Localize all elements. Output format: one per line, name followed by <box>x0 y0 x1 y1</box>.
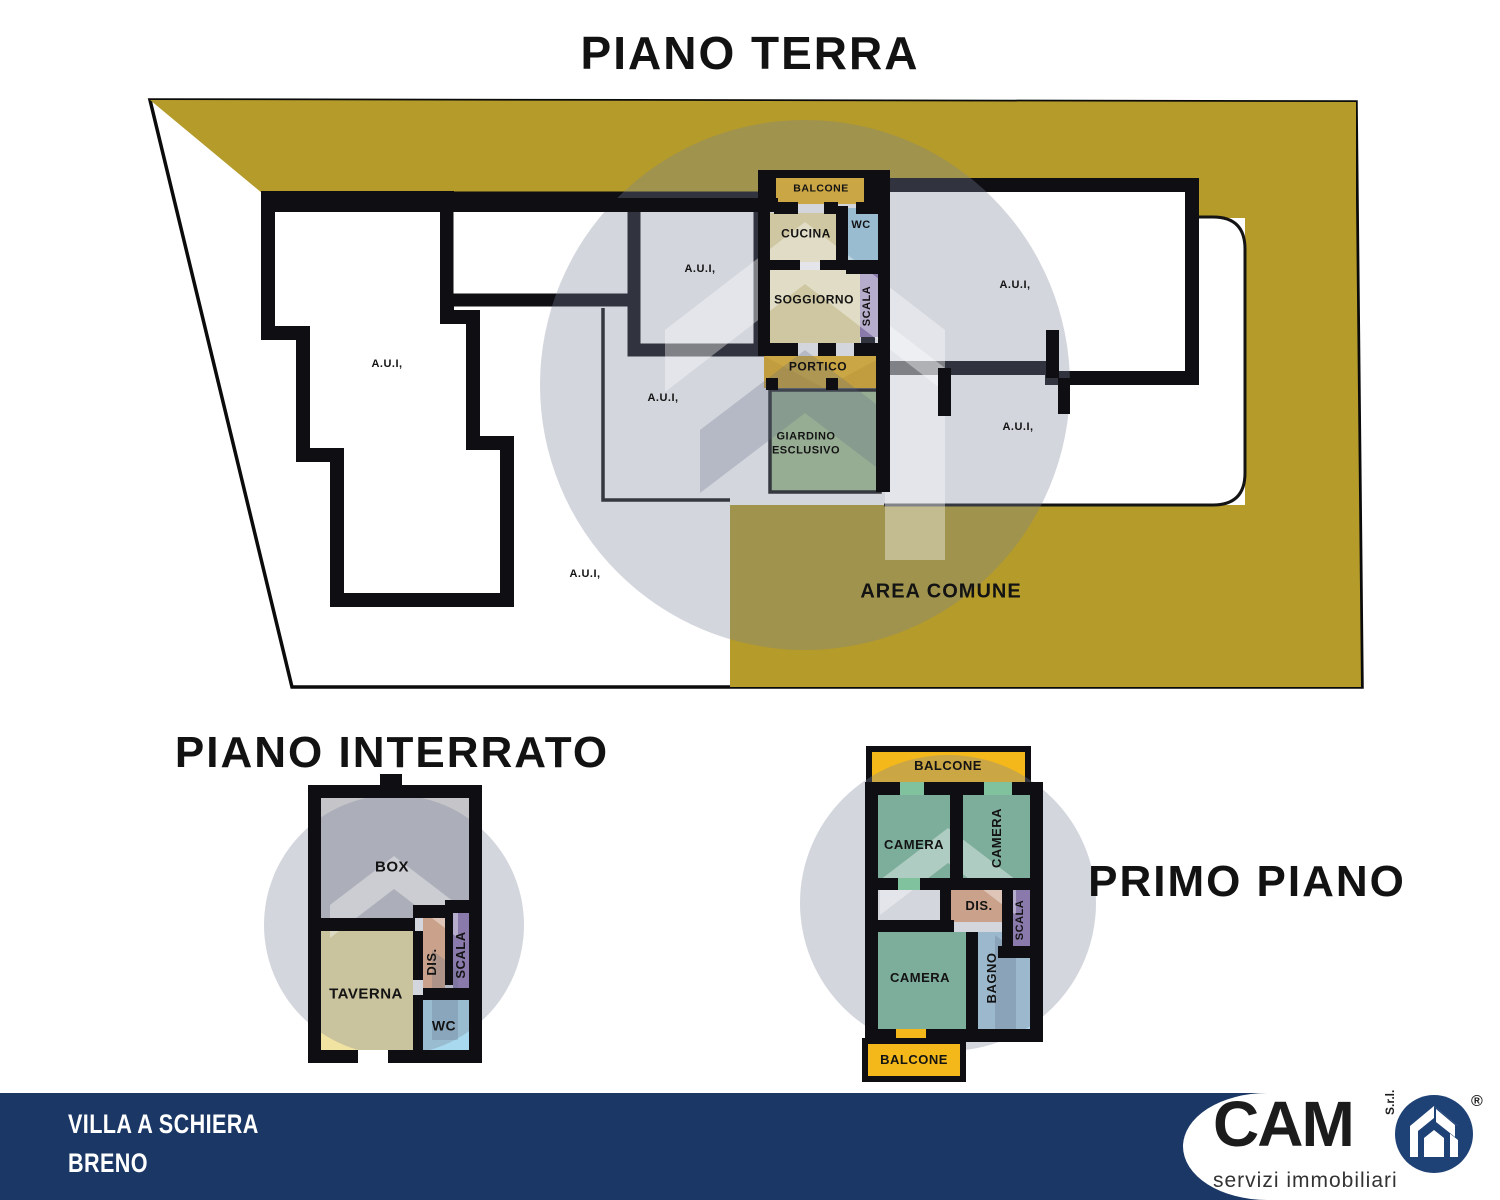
aui-label: A.U.I, <box>371 358 402 372</box>
room-label-scala-ground: SCALA <box>861 286 875 326</box>
room-label-giardino: GIARDINO ESCLUSIVO <box>772 430 840 458</box>
room-label-scala-basement: SCALA <box>453 931 469 978</box>
area-comune-label: AREA COMUNE <box>860 580 1021 605</box>
aui-label: A.U.I, <box>999 279 1030 293</box>
first-floor-plan <box>800 746 1096 1082</box>
cam-logo-circle <box>1395 1095 1473 1173</box>
aui-label: A.U.I, <box>684 263 715 277</box>
room-label-soggiorno: SOGGIORNO <box>774 293 854 308</box>
plan-sheet: PIANO TERRA PIANO INTERRATO PRIMO PIANO … <box>0 0 1500 1200</box>
room-label-balcone-ground: BALCONE <box>793 182 848 195</box>
title-piano-terra: PIANO TERRA <box>450 26 1050 80</box>
property-title: VILLA A SCHIERA BRENO <box>68 1105 259 1183</box>
house-icon <box>1395 1095 1473 1173</box>
aui-label: A.U.I, <box>647 392 678 406</box>
room-label-balcone-bottom: BALCONE <box>880 1052 948 1068</box>
logo-tagline: servizi immobiliari <box>1213 1169 1398 1193</box>
footer-bar: VILLA A SCHIERA BRENO CAM S.r.l. ® servi… <box>0 1093 1500 1200</box>
room-label-camera-tl: CAMERA <box>884 837 944 853</box>
gold-right-strip <box>1245 198 1361 687</box>
room-label-camera-tr: CAMERA <box>989 808 1005 868</box>
footer-logo-plate: CAM S.r.l. ® servizi immobiliari <box>1183 1093 1500 1200</box>
aui-label: A.U.I, <box>569 568 600 582</box>
basement-plan <box>264 774 524 1063</box>
cam-logo-text: CAM <box>1213 1087 1353 1161</box>
room-label-wc-ground: WC <box>851 219 870 233</box>
room-label-dis-first: DIS. <box>965 898 992 914</box>
room-label-taverna: TAVERNA <box>329 986 403 1005</box>
floor-plans-graphic <box>0 0 1500 1200</box>
room-label-bagno: BAGNO <box>984 953 1000 1004</box>
title-piano-interrato: PIANO INTERRATO <box>142 728 642 778</box>
room-label-dis-basement: DIS. <box>424 948 440 975</box>
room-label-box: BOX <box>375 859 409 878</box>
room-label-wc-basement: WC <box>432 1017 456 1035</box>
property-name: VILLA A SCHIERA <box>68 1105 259 1144</box>
title-primo-piano: PRIMO PIANO <box>997 857 1497 907</box>
room-label-camera-bl: CAMERA <box>890 970 950 986</box>
room-label-portico: PORTICO <box>789 360 847 375</box>
room-label-balcone-top: BALCONE <box>914 758 982 774</box>
registered-mark: ® <box>1471 1093 1483 1111</box>
room-label-cucina: CUCINA <box>781 227 831 242</box>
property-location: BRENO <box>68 1144 259 1183</box>
ground-floor-plan <box>150 100 1362 687</box>
aui-label: A.U.I, <box>1002 421 1033 435</box>
room-label-scala-first: SCALA <box>1014 900 1028 940</box>
